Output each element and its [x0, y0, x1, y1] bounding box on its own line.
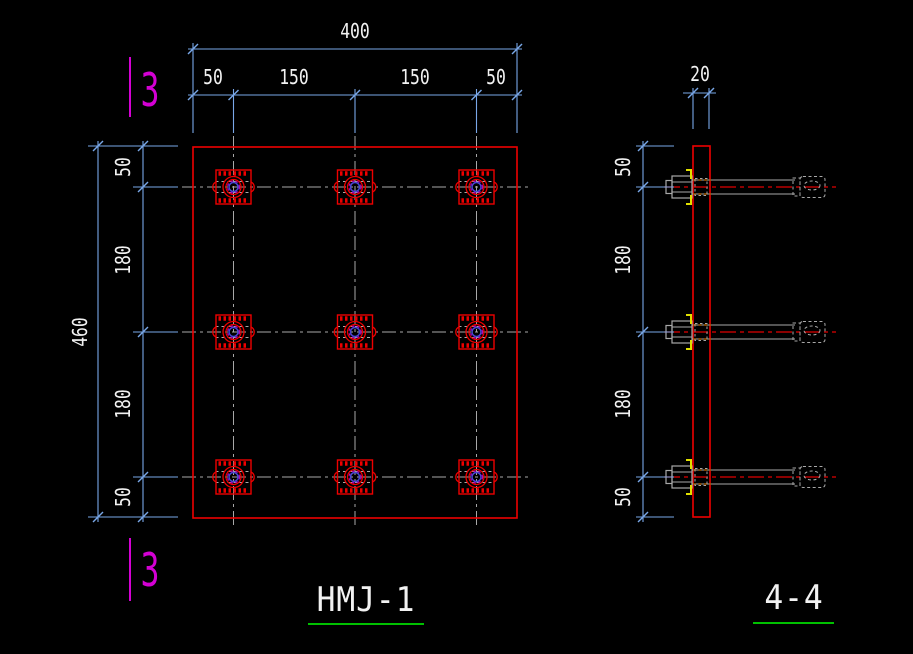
section-dim-top: [683, 88, 716, 129]
dim-label-top-seg: 50: [486, 67, 506, 87]
section-view-title: 4-4: [764, 581, 823, 615]
dim-label-plate-thickness: 20: [690, 64, 710, 84]
plan-view-title: HMJ-1: [317, 583, 416, 617]
title-underlines: [308, 623, 834, 624]
plan-dim-top: [188, 43, 522, 133]
drawing-svg: [0, 0, 913, 654]
dim-label-top-seg: 150: [400, 67, 430, 87]
plan-dim-left: [88, 141, 178, 522]
anchor-bolt-section: [664, 315, 836, 349]
section-cut-number: 3: [141, 547, 160, 593]
dim-label-section-seg: 50: [613, 157, 633, 177]
anchor-bolt-section: [664, 460, 836, 494]
section-cut-number: 3: [141, 67, 160, 113]
dim-label-section-seg: 50: [613, 487, 633, 507]
dim-label-top-seg: 50: [203, 67, 223, 87]
dim-label-overall-height: 460: [70, 317, 90, 347]
dim-label-overall-width: 400: [340, 21, 370, 41]
plan-view: [182, 136, 528, 529]
section-dim-left: [636, 141, 674, 522]
dim-label-section-seg: 180: [613, 389, 633, 419]
dim-label-left-seg: 180: [113, 389, 133, 419]
dim-label-section-seg: 180: [613, 245, 633, 275]
dim-label-left-seg: 180: [113, 245, 133, 275]
dim-label-top-seg: 150: [279, 67, 309, 87]
drawing-canvas[interactable]: 400 50 150 150 50 460 50 180 180 50 3 3 …: [0, 0, 913, 654]
dim-label-left-seg: 50: [113, 157, 133, 177]
section-view: [664, 146, 836, 517]
dim-label-left-seg: 50: [113, 487, 133, 507]
anchor-bolt-section: [664, 170, 836, 204]
